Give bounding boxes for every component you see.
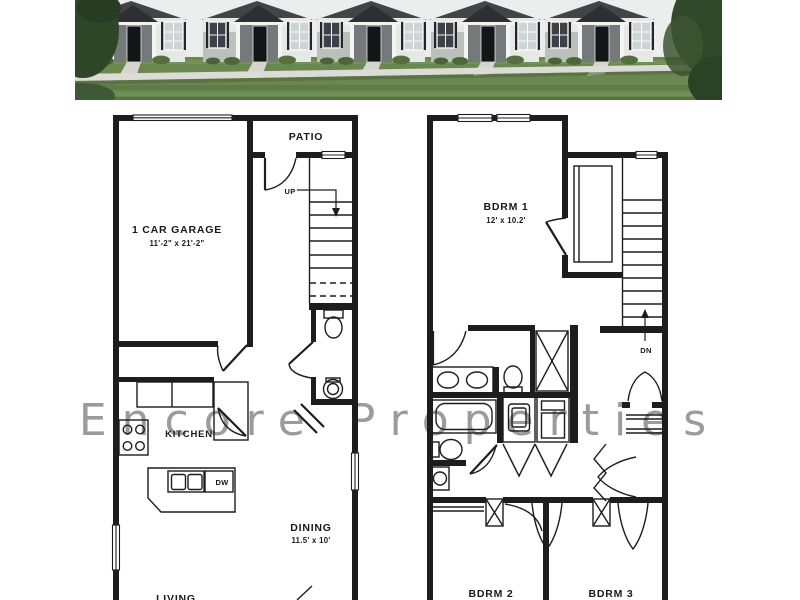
garage-label: 1 CAR GARAGE [132,224,222,236]
floor-plan-2: BDRM 1 12' x 10.2' DN BDRM 2 BDRM 3 [427,115,668,600]
double-vanity-icon [431,367,493,394]
dryer-icon [537,396,569,442]
cased-opening-icon [486,499,503,526]
laundry-closet [503,396,569,476]
bdrm1-label: BDRM 1 [483,201,528,213]
bifold-door-icon [594,444,606,501]
bdrm3-door-icon [618,503,648,549]
floor2-windows [458,115,657,159]
patio-label: PATIO [289,131,324,143]
kitchen-sink-icon [168,471,204,492]
stove-icon [119,420,148,455]
dining-label: DINING [290,522,332,534]
listing-image: Encore Properties [0,0,800,600]
bdrm1-dims: 12' x 10.2' [486,216,526,225]
staircase-down [623,158,663,341]
townhouse-photo [75,0,722,100]
toilet2-icon [430,440,462,460]
toilet-icon [324,310,343,338]
dishwasher-label: DW [215,478,229,487]
kitchen-island: DW [148,468,235,512]
bifold-door-icon [503,444,567,476]
bdrm1-closet [546,166,612,262]
dining-dims: 11.5' x 10' [291,536,330,545]
kitchen-label: KITCHEN [165,429,213,440]
shower-icon [536,331,568,391]
staircase-up [297,158,352,303]
floor2-walls [427,115,668,600]
dn-label: DN [640,346,651,355]
floor2-doors [430,331,648,549]
bdrm3-label: BDRM 3 [588,588,633,600]
powder-room [324,310,344,399]
garage-dims: 11'-2" x 21'-2" [149,239,204,248]
linen-closet [594,372,662,501]
bdrm2-label: BDRM 2 [468,588,513,600]
pedestal-sink-icon [324,378,343,399]
dishwasher-icon: DW [205,471,233,492]
kitchen-fixtures: DW [119,382,248,512]
washer-icon [503,396,535,442]
closet-door-arc [628,372,662,401]
toilet-icon [504,366,522,395]
living-label: LIVING [156,593,196,600]
floor-plan-1: DW PATIO 1 CAR GARAGE 11'-2" x 21'-2" UP… [113,115,359,600]
cased-opening-icon [593,499,610,526]
up-label: UP [284,187,295,196]
bathtub-icon [432,400,496,433]
